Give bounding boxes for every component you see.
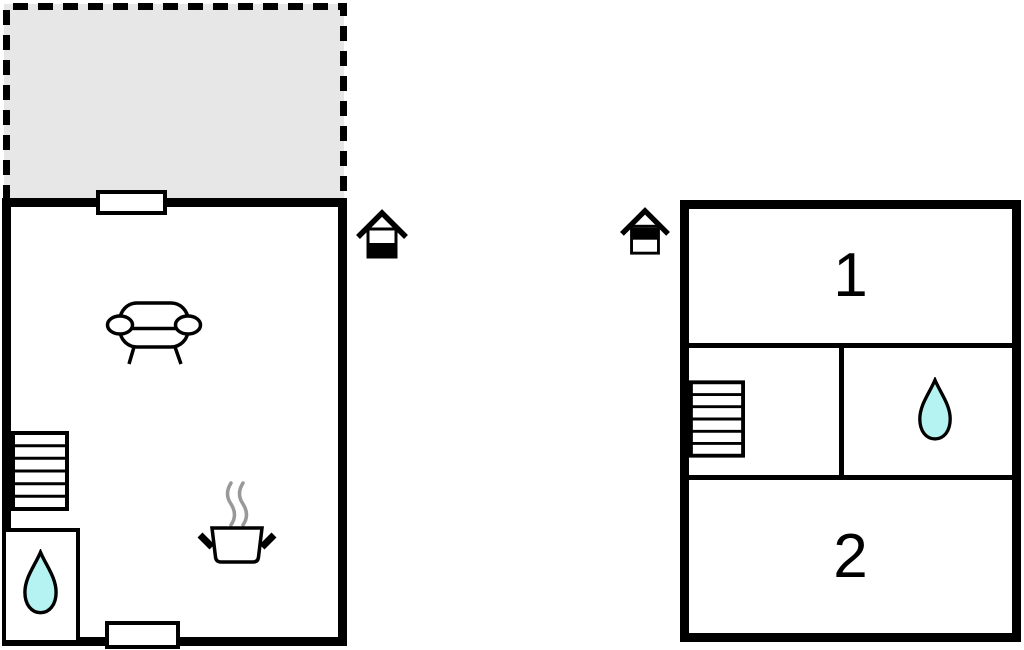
sofa-armrest-right: [176, 316, 201, 334]
stairs-icon: [689, 380, 745, 458]
water-drop-icon: [21, 549, 60, 616]
window: [96, 190, 167, 215]
room-2-label: 2: [689, 480, 1012, 633]
sofa-leg-left: [129, 347, 134, 364]
pot-body: [212, 528, 262, 562]
house-filled-upper-half: [633, 228, 657, 240]
floor-plan-canvas: 1 2: [0, 0, 1024, 650]
water-drop-shape: [25, 552, 56, 612]
cooking-pot-icon: [192, 472, 292, 572]
stairs-icon: [11, 431, 69, 511]
steam-lines: [228, 483, 247, 525]
water-drop-icon: [916, 377, 954, 442]
interior-wall-landing-bath: [839, 343, 844, 480]
house-filled-lower-half: [370, 243, 395, 256]
door: [105, 621, 180, 649]
terrace-fill: [4, 4, 344, 200]
house-level-icon-ground: [356, 209, 408, 261]
sofa-icon: [98, 295, 208, 373]
sofa-armrest-left: [108, 316, 133, 334]
interior-wall-room1-bottom: [689, 343, 1012, 348]
sofa-leg-right: [175, 347, 181, 364]
water-drop-shape: [920, 380, 950, 439]
terrace-open-area: [0, 0, 350, 200]
house-level-icon-upper: [620, 207, 670, 257]
room-1-label: 1: [689, 208, 1012, 343]
